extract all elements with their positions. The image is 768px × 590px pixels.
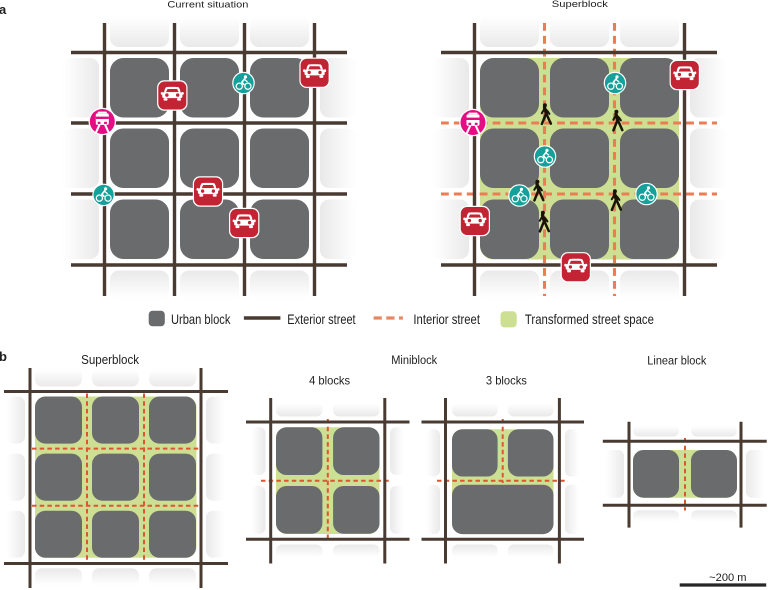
svg-text:4 blocks: 4 blocks [309,375,350,388]
svg-text:Urban block: Urban block [171,312,231,327]
svg-text:Superblock: Superblock [81,353,140,367]
svg-text:b: b [0,349,7,364]
svg-text:Exterior street: Exterior street [287,312,355,327]
svg-text:Transformed street space: Transformed street space [525,312,654,327]
svg-text:a: a [0,2,7,17]
svg-text:Current situation: Current situation [167,0,248,10]
svg-text:~200 m: ~200 m [709,572,746,584]
svg-text:Superblock: Superblock [552,0,608,9]
svg-text:Linear block: Linear block [647,354,707,368]
svg-text:Miniblock: Miniblock [391,353,438,367]
svg-text:3 blocks: 3 blocks [486,375,527,388]
svg-text:Interior street: Interior street [413,312,480,327]
